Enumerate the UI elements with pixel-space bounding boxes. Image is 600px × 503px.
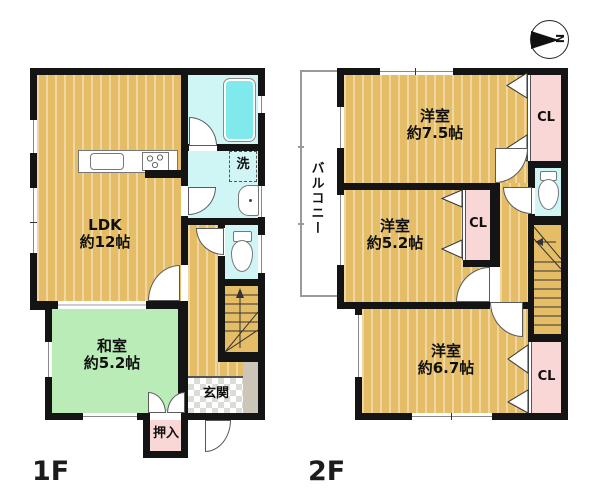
window-toilet-right [258, 235, 265, 273]
stairs-1f [225, 286, 258, 352]
yoshitsu-75-name: 洋室 [385, 108, 485, 125]
balcony-rail-tick-2 [298, 223, 304, 225]
doorway-52 [490, 267, 500, 302]
stairs-2f-treads-icon [534, 225, 561, 334]
vanity-faucet-dot [249, 199, 252, 202]
washitsu-label: 和室 約5.2帖 [62, 338, 162, 372]
window-bathroom-right [258, 96, 265, 113]
ldk-label: LDK 約12帖 [55, 217, 155, 251]
window-mullion [30, 222, 37, 223]
window-ldk-left-1 [30, 120, 37, 153]
laundry-label: 洗 [229, 158, 257, 173]
room-ldk [37, 75, 181, 301]
balcony-rail-tick-1 [298, 146, 304, 148]
yoshitsu-67-size: 約6.7帖 [396, 360, 496, 377]
cl2-bottom-wall [463, 260, 490, 267]
kitchen-sink-icon [90, 153, 124, 170]
doorway-ldk-washroom [181, 186, 188, 216]
yoshitsu-67-label: 洋室 約6.7帖 [396, 343, 496, 377]
door-arc-entrance [205, 420, 231, 452]
yoshitsu-75-label: 洋室 約7.5帖 [385, 108, 485, 142]
kitchen-half-wall [145, 170, 181, 178]
balcony-label: バルコニー [308, 150, 323, 246]
cl2-label: CL [464, 217, 492, 232]
cl3-bifold-icon [508, 342, 528, 413]
oshiire-label: 押入 [150, 427, 182, 442]
window-52-left [337, 195, 344, 265]
stove-icon [142, 152, 169, 171]
window-ldk-left-2 [30, 188, 37, 253]
yoshitsu-52-label: 洋室 約5.2帖 [345, 218, 445, 252]
washitsu-name: 和室 [62, 338, 162, 355]
stairs-2f [534, 225, 561, 334]
genkan-step-line [188, 376, 243, 378]
f1-stairs-bottom-wall [218, 352, 265, 362]
yoshitsu-67-name: 洋室 [396, 343, 496, 360]
window-washitsu-bottom [83, 413, 137, 420]
ldk-name: LDK [55, 217, 155, 234]
window-75-top [380, 68, 453, 75]
window-67-bottom [412, 413, 492, 420]
genkan-label: 玄関 [191, 387, 241, 402]
window-washitsu-left [45, 342, 52, 377]
bathtub-icon [224, 79, 255, 141]
cl2-bifold-icon [442, 190, 462, 260]
sliding-door-ldk-washitsu [58, 301, 146, 309]
washitsu-size: 約5.2帖 [62, 355, 162, 372]
window-67-left [355, 315, 362, 377]
window-mullion-75 [415, 68, 416, 75]
porch-strip [243, 362, 258, 413]
cl3-label: CL [532, 370, 561, 385]
window-mullion-67 [451, 413, 452, 420]
ldk-size: 約12帖 [55, 234, 155, 251]
cl1-label: CL [531, 111, 561, 126]
window-washroom-right [258, 186, 265, 217]
doorway-ldk-hall [181, 265, 188, 301]
stairs-1f-treads-icon [225, 286, 258, 352]
yoshitsu-52-name: 洋室 [345, 218, 445, 235]
floor2-tag: 2F [308, 456, 345, 487]
window-75-left [337, 107, 344, 148]
yoshitsu-75-size: 約7.5帖 [385, 125, 485, 142]
floor1-tag: 1F [32, 456, 69, 487]
yoshitsu-52-size: 約5.2帖 [345, 235, 445, 252]
compass-north-label: N [553, 34, 566, 43]
floor-plan-page: { "compass": { "north_label": "N" }, "fl… [0, 0, 600, 503]
